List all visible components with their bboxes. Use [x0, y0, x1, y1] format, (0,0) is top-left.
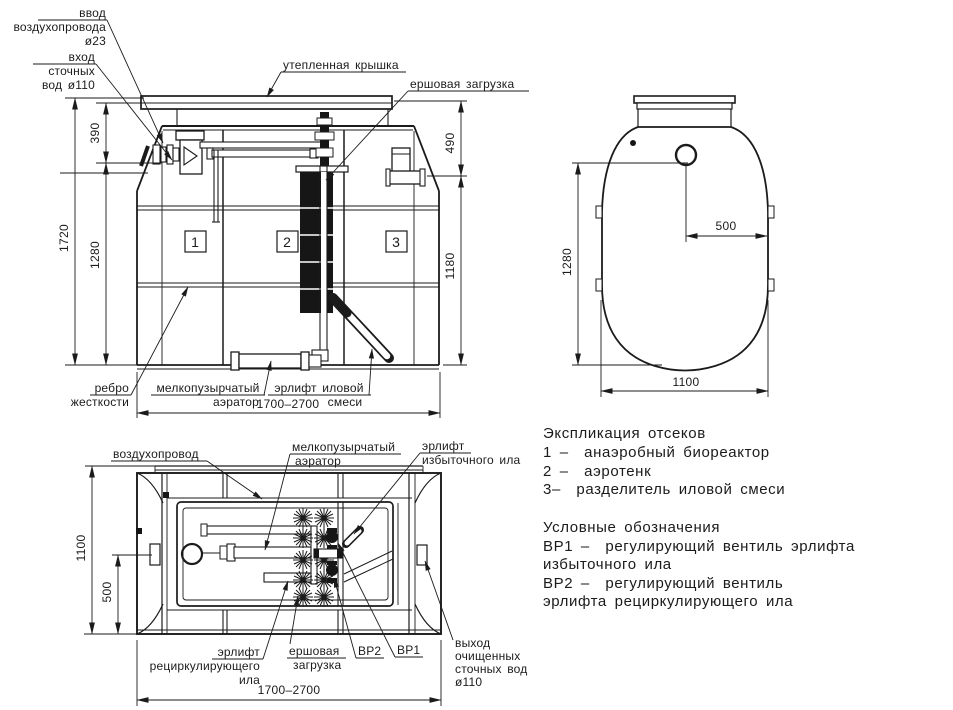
sewage-inlet-assembly: [141, 131, 204, 174]
front-dim-1280: 1280: [88, 241, 102, 269]
front-dim-490: 490: [443, 133, 457, 154]
label-air-inlet-line3: ø23: [85, 34, 106, 48]
label-stiffener-line1: ребро: [95, 381, 130, 395]
sludge-airlift-pipe: [333, 298, 389, 358]
label-bp2: ВР2: [358, 644, 381, 658]
label-plan-aerator-line2: аэратор: [295, 454, 341, 468]
front-dim-1720: 1720: [57, 224, 71, 252]
label-stiffener-line2: жесткости: [71, 395, 129, 409]
technical-drawing: 1 2 3: [0, 0, 953, 710]
pipe-opening-circle: [676, 145, 696, 165]
label-recirc-airlift-line3: ила: [239, 673, 260, 687]
label-plan-aerator-line1: мелкопузырчатый: [292, 440, 395, 454]
label-aerator-line1: мелкопузырчатый: [156, 381, 259, 395]
plan-internals: [201, 508, 393, 607]
side-dimensions: 1280 500 1100: [560, 163, 768, 397]
fine-bubble-aerator: [231, 352, 321, 370]
side-view: 1280 500 1100: [560, 96, 774, 397]
label-excess-airlift-line1: эрлифт: [422, 439, 465, 453]
label-outlet-line2: очищенных: [455, 649, 520, 663]
legend-symbol-3: ВР2 – регулирующий вентиль: [543, 575, 783, 592]
front-dim-390: 390: [88, 123, 102, 144]
label-sludge-airlift-line1: эрлифт иловой: [274, 381, 363, 395]
front-dim-length: 1700–2700: [257, 397, 320, 411]
label-plan-brush-line1: ершовая: [289, 644, 339, 658]
compartment-2-number: 2: [283, 234, 291, 250]
excess-sludge-airlift: [346, 530, 360, 544]
insulated-cover: [141, 96, 392, 126]
front-view: 1 2 3: [13, 6, 529, 418]
legend-item-1: 1 – анаэробный биореактор: [543, 444, 770, 461]
label-air-inlet-line1: ввод: [79, 6, 106, 20]
label-sludge-airlift-line2: смеси: [328, 395, 363, 409]
label-recirc-airlift-line1: эрлифт: [218, 645, 261, 659]
plan-dim-500: 500: [100, 582, 114, 603]
label-sewage-inlet-line2: сточных: [48, 64, 95, 78]
drawing-canvas: 1 2 3: [0, 0, 953, 710]
valve-bp1: [326, 528, 338, 549]
label-brush-media: ершовая загрузка: [410, 77, 515, 91]
label-sewage-inlet-line1: вход: [69, 50, 95, 64]
inlet-stub: [150, 544, 160, 565]
label-recirc-airlift-line2: рециркулирующего: [150, 659, 260, 673]
label-air-inlet-line2: воздухопровода: [13, 20, 106, 34]
label-outlet-line3: сточных вод: [455, 662, 527, 676]
legend-symbol-1: ВР1 – регулирующий вентиль эрлифта: [543, 538, 855, 555]
plan-pipe-circle: [182, 544, 202, 564]
label-outlet-line1: выход: [455, 636, 490, 650]
compartment-3-number: 3: [392, 234, 400, 250]
legend-symbol-2: избыточного ила: [543, 556, 672, 573]
legend-block: Экспликация отсеков 1 – анаэробный биоре…: [543, 425, 855, 610]
compartment-numbers: 1 2 3: [185, 231, 407, 252]
label-aerator-line2: аэратор: [213, 395, 259, 409]
side-dim-500: 500: [716, 219, 737, 233]
front-labels: ввод воздухопровода ø23 вход сточных вод…: [13, 6, 529, 409]
side-body-outline: [602, 127, 768, 371]
side-cover: [634, 96, 735, 127]
compartment-1-number: 1: [191, 234, 199, 250]
label-excess-airlift-line2: избыточного ила: [422, 453, 521, 467]
outlet-elbow: [386, 148, 425, 186]
front-dim-1180: 1180: [443, 252, 457, 279]
vent-dot: [630, 140, 636, 146]
legend-item-3: 3– разделитель иловой смеси: [543, 481, 785, 498]
legend-subtitle: Условные обозначения: [543, 519, 720, 536]
side-lugs: [596, 206, 774, 291]
side-dim-1280: 1280: [560, 248, 574, 276]
label-insulated-cover: утепленная крышка: [283, 58, 399, 72]
plan-top-pipe: [207, 526, 311, 534]
label-air-duct: воздухопровод: [113, 447, 199, 461]
plan-dim-length: 1700–2700: [258, 683, 321, 697]
plan-dim-1100: 1100: [74, 534, 88, 561]
plan-view: 1100 500 1700–2700 воздухопровод мелкопу…: [74, 439, 527, 706]
legend-title: Экспликация отсеков: [543, 425, 706, 442]
legend-item-2: 2 – аэротенк: [543, 463, 651, 480]
valve-bp2: [326, 561, 338, 583]
label-plan-brush-line2: загрузка: [293, 658, 342, 672]
label-bp1: ВР1: [397, 643, 420, 657]
label-outlet-line4: ø110: [455, 675, 482, 689]
label-sewage-inlet-line3: вод ø110: [42, 78, 95, 92]
plan-labels: воздухопровод мелкопузырчатый аэратор эр…: [111, 439, 527, 689]
plan-bottom-pipe: [264, 573, 315, 582]
side-dim-1100: 1100: [672, 375, 699, 389]
legend-symbol-4: эрлифта рециркулирующего ила: [543, 593, 793, 610]
